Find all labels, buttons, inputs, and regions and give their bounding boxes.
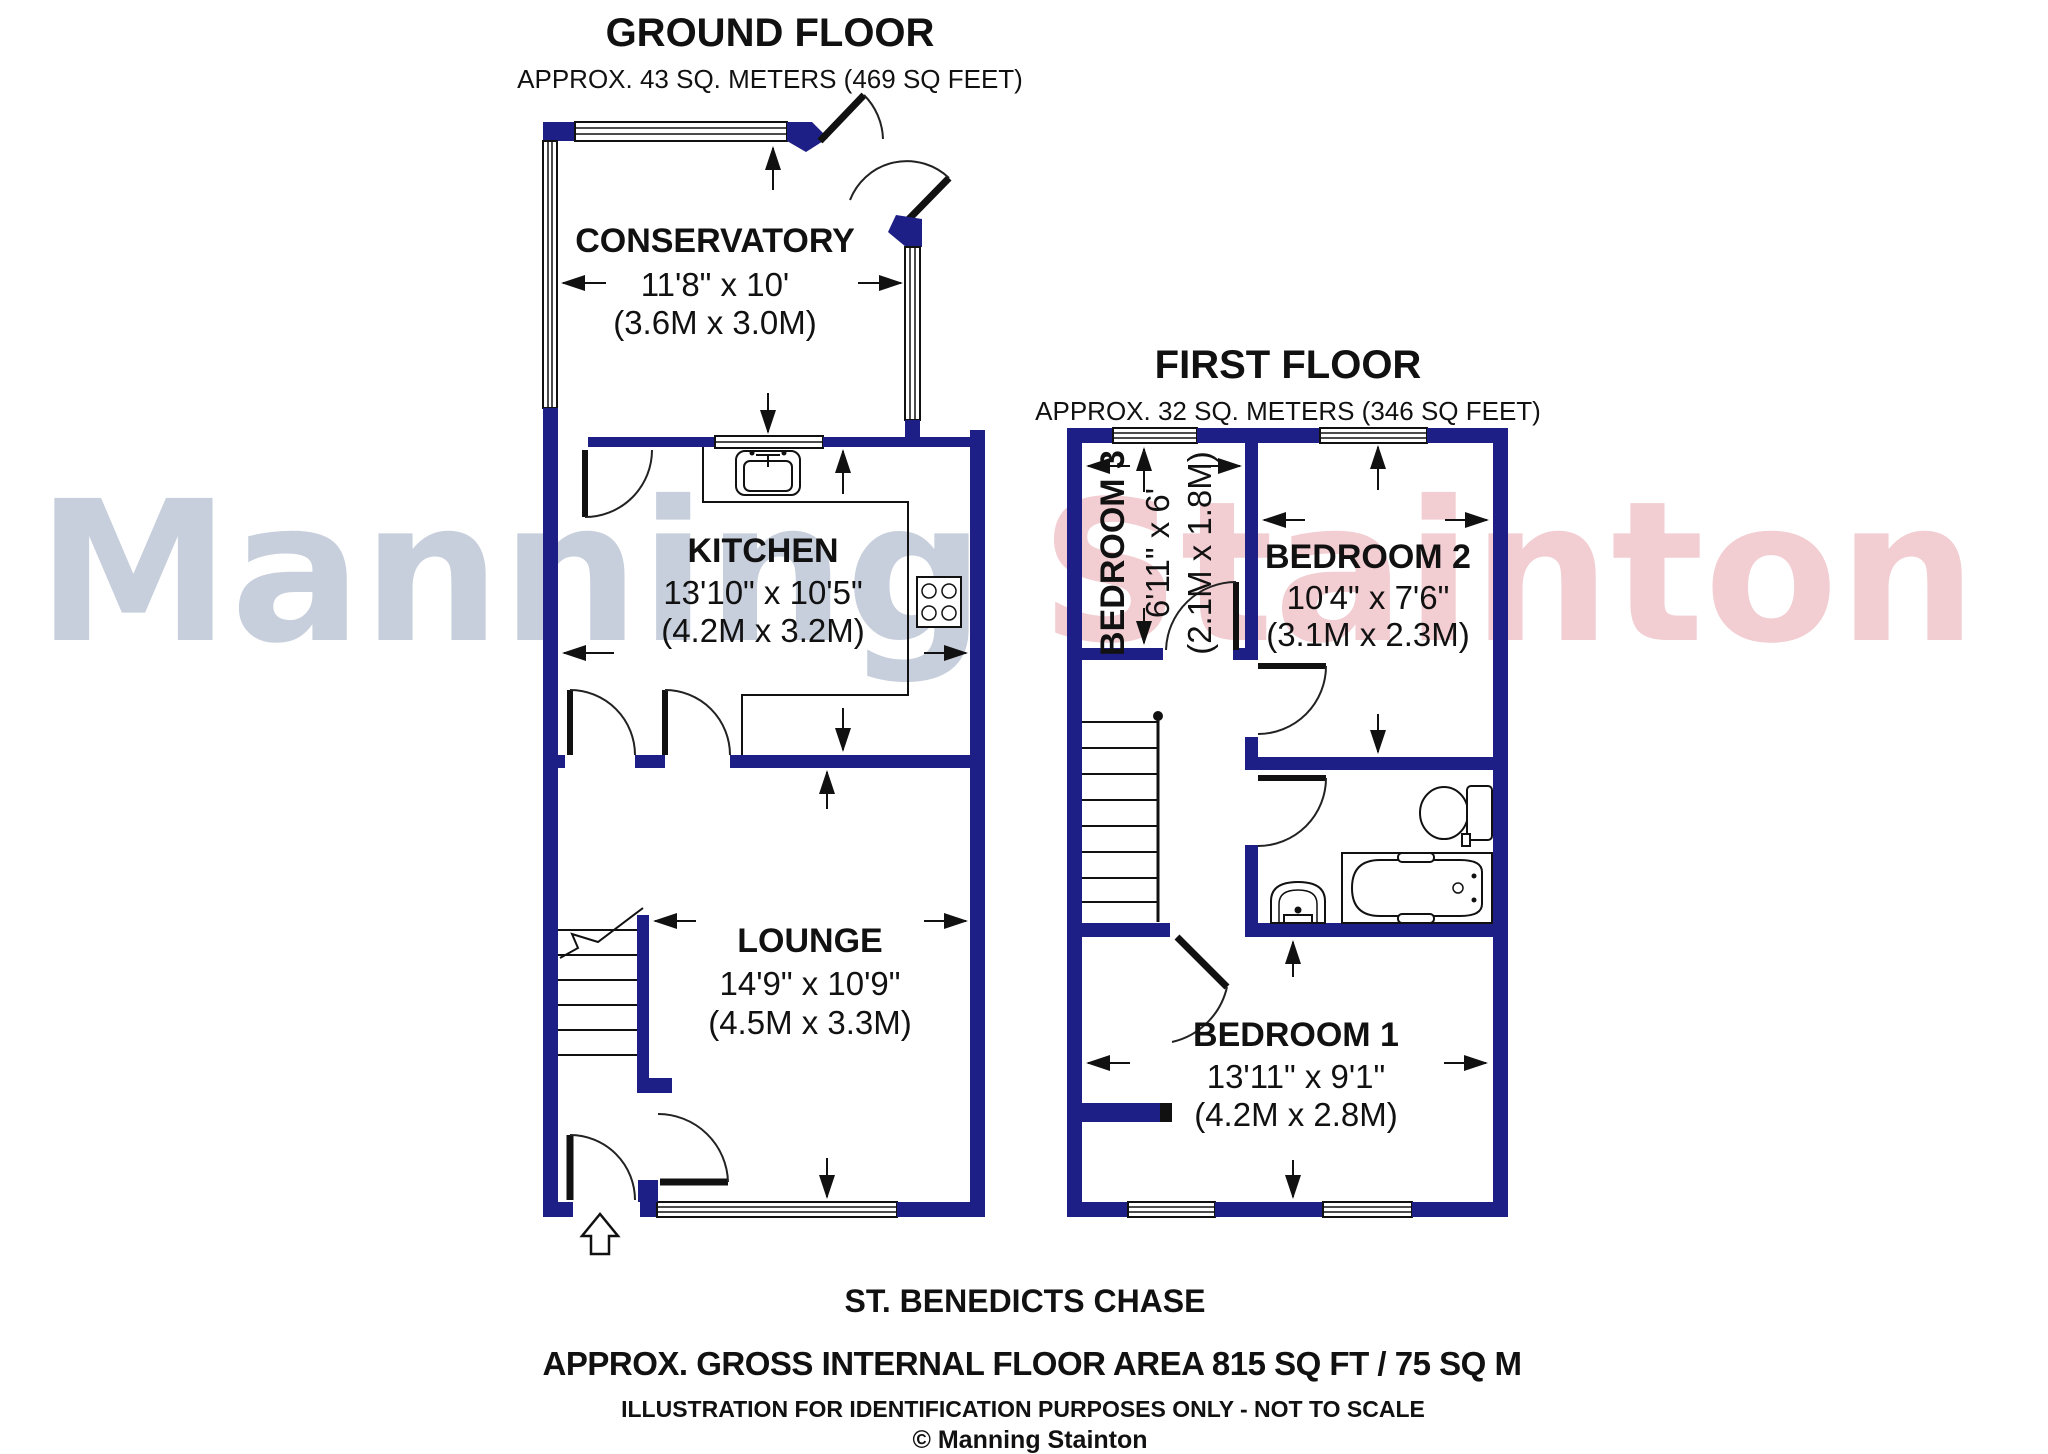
french-doors [820,95,949,222]
conservatory-label: CONSERVATORY [575,222,855,260]
stairs-up-mark [560,908,643,958]
conservatory-dims-metric: (3.6M x 3.0M) [613,304,817,341]
window [1113,428,1197,443]
entrance-door [570,1135,635,1254]
kitchen-dims-metric: (4.2M x 3.2M) [661,612,865,649]
bedroom2-label: BEDROOM 2 [1265,538,1471,576]
hob [917,577,961,627]
window [1320,428,1427,443]
window [905,247,920,420]
window [1128,1202,1215,1217]
disclaimer: ILLUSTRATION FOR IDENTIFICATION PURPOSES… [621,1396,1425,1422]
door-jamb [888,215,922,247]
first-floor-title: FIRST FLOOR [1155,343,1422,387]
brand-watermark: Manning Stainton [36,459,1976,686]
kitchen-lounge-doors [570,690,730,755]
bedroom1-dims-metric: (4.2M x 2.8M) [1194,1096,1398,1133]
kitchen-sink [736,451,800,496]
gross-area: APPROX. GROSS INTERNAL FLOOR AREA 815 SQ… [543,1345,1522,1382]
staircase-ground [558,908,672,1093]
staircase-first [1082,711,1163,922]
window [1323,1202,1412,1217]
toilet [1420,786,1492,846]
bedroom3-label: BEDROOM 3 [1094,450,1132,656]
bedroom1-label: BEDROOM 1 [1193,1016,1399,1054]
bathroom-door [1258,778,1326,846]
bedroom2-dims-imperial: 10'4" x 7'6" [1287,579,1450,616]
hall-lounge-door [638,1114,728,1202]
street-name: ST. BENEDICTS CHASE [845,1283,1206,1319]
ground-floor-subtitle: APPROX. 43 SQ. METERS (469 SQ FEET) [517,64,1023,94]
window [575,122,787,141]
copyright: © Manning Stainton [912,1426,1147,1454]
ground-floor-title: GROUND FLOOR [606,11,935,55]
first-floor-subtitle: APPROX. 32 SQ. METERS (346 SQ FEET) [1035,396,1541,426]
conservatory-dims-imperial: 11'8" x 10' [641,266,789,303]
window [657,1202,897,1217]
bedroom1-dims-imperial: 13'11" x 9'1" [1207,1058,1386,1095]
window [543,141,557,408]
newel-post [1153,711,1163,721]
kitchen-label: KITCHEN [687,532,838,570]
bedroom2-dims-metric: (3.1M x 2.3M) [1266,616,1470,653]
basin [1271,882,1325,923]
lounge-label: LOUNGE [737,922,882,960]
bedroom3-dims-imperial: 6'11" x 6' [1139,488,1176,618]
wall-cap [1160,1103,1172,1122]
lounge-dims-imperial: 14'9" x 10'9" [720,965,901,1002]
bedroom3-dims-metric: (2.1M x 1.8M) [1181,451,1218,655]
lounge-dims-metric: (4.5M x 3.3M) [708,1004,912,1041]
entrance-arrow-icon [582,1214,618,1254]
window [715,436,823,448]
floorplan-page: Manning Stainton GROUND FLOOR APPROX. 43… [0,0,2048,1454]
floorplan-svg: Manning Stainton GROUND FLOOR APPROX. 43… [0,0,2048,1454]
bathtub [1342,853,1492,923]
footer: ST. BENEDICTS CHASE APPROX. GROSS INTERN… [543,1283,1522,1454]
kitchen-dims-imperial: 13'10" x 10'5" [663,574,862,611]
